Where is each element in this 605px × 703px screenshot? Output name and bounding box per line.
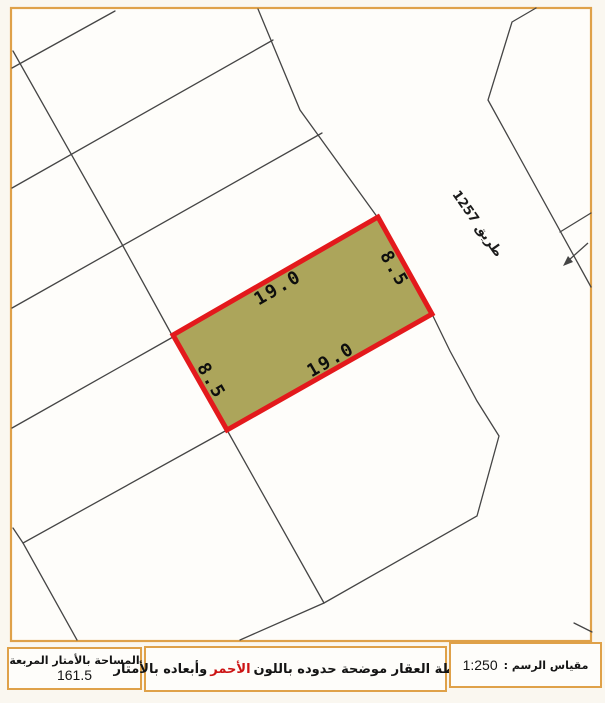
description-text-end: وأبعاده بالأمتار: [114, 662, 208, 677]
scale-label: مقياس الرسم :: [504, 659, 589, 672]
description-highlight-red: الأحمر: [210, 662, 250, 677]
scale-value: 1:250: [463, 657, 498, 673]
cadastral-map-page: 19.0 19.0 8.5 8.5 طريق 1257 المساحة بالأ…: [0, 0, 605, 703]
parcel-map-drawing: [0, 0, 605, 703]
map-description-box: خريطة العقار موضحة حدوده باللون الأحمر و…: [144, 646, 447, 692]
area-value: 161.5: [57, 668, 92, 683]
description-text-start: خريطة العقار موضحة حدوده باللون: [254, 662, 478, 677]
scale-info-box: مقياس الرسم : 1:250: [449, 642, 602, 688]
